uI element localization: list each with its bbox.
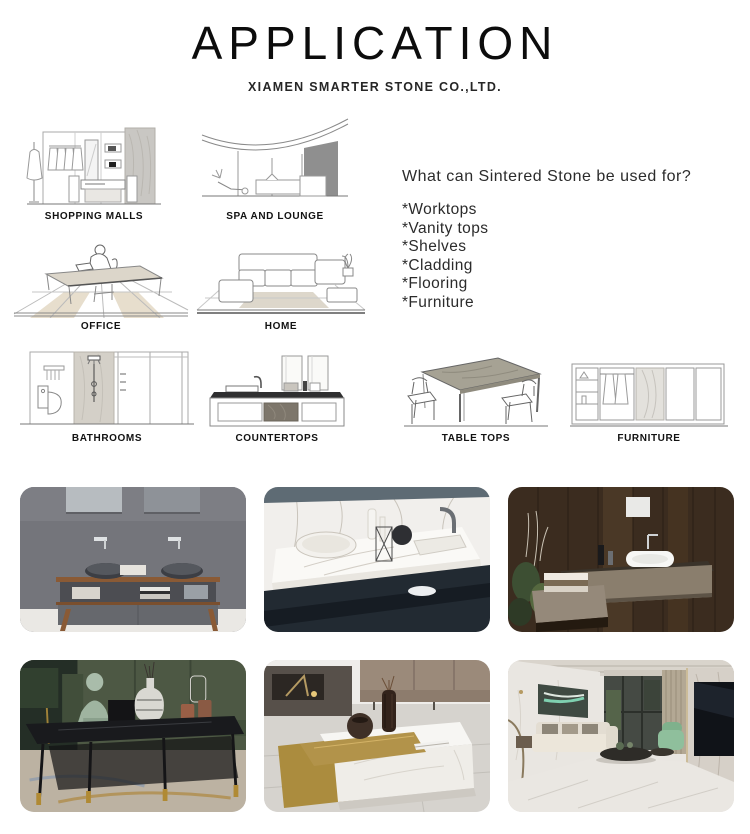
- photo-1-image: [20, 487, 246, 632]
- application-label: SHOPPING MALLS: [25, 211, 163, 222]
- application-home: HOME: [195, 240, 367, 332]
- application-countertops: COUNTERTOPS: [206, 352, 348, 444]
- photo-double-basin-grey-stone-vanity: [20, 487, 246, 632]
- photo-4-image: [20, 660, 246, 812]
- photo-white-marble-gold-coffee-table: [264, 660, 490, 812]
- photo-5-image: [264, 660, 490, 812]
- use-item: *Shelves: [402, 238, 740, 257]
- office-illustration: [12, 234, 190, 318]
- application-label: SPA AND LOUNGE: [200, 211, 350, 222]
- application-furniture: FURNITURE: [568, 360, 730, 444]
- application-label: COUNTERTOPS: [206, 433, 348, 444]
- spa-and-lounge-illustration: [200, 118, 350, 208]
- application-label: HOME: [195, 321, 367, 332]
- page-title: APPLICATION: [0, 20, 750, 66]
- application-label: TABLE TOPS: [402, 433, 550, 444]
- application-table-tops: TABLE TOPS: [402, 350, 550, 444]
- photo-2-image: [264, 487, 490, 632]
- use-item: *Cladding: [402, 257, 740, 276]
- application-label: FURNITURE: [568, 433, 730, 444]
- photo-6-image: [508, 660, 734, 812]
- photo-black-sintered-stone-coffee-table: [20, 660, 246, 812]
- intro-text: What can Sintered Stone be used for? *Wo…: [402, 168, 740, 312]
- application-office: OFFICE: [12, 234, 190, 332]
- application-spa-and-lounge: SPA AND LOUNGE: [200, 118, 350, 222]
- photo-white-marble-washbasin-countertop: [264, 487, 490, 632]
- question-heading: What can Sintered Stone be used for?: [402, 168, 740, 186]
- use-item: *Flooring: [402, 275, 740, 294]
- uses-list: *Worktops *Vanity tops *Shelves *Claddin…: [402, 201, 740, 312]
- use-item: *Vanity tops: [402, 220, 740, 239]
- application-label: BATHROOMS: [18, 433, 196, 444]
- countertops-illustration: [206, 352, 348, 430]
- shopping-malls-illustration: [25, 122, 163, 208]
- table-tops-illustration: [402, 350, 550, 430]
- photo-floating-stone-vanity-dark-wood-wall: [508, 487, 734, 632]
- photo-3-image: [508, 487, 734, 632]
- furniture-illustration: [568, 360, 730, 430]
- photo-marble-floor-living-room: [508, 660, 734, 812]
- application-shopping-malls: SHOPPING MALLS: [25, 122, 163, 222]
- application-page: APPLICATION XIAMEN SMARTER STONE CO.,LTD…: [0, 0, 750, 834]
- application-label: OFFICE: [12, 321, 190, 332]
- application-bathrooms: BATHROOMS: [18, 346, 196, 444]
- company-subtitle: XIAMEN SMARTER STONE CO.,LTD.: [0, 80, 750, 94]
- use-item: *Furniture: [402, 294, 740, 313]
- home-illustration: [195, 240, 367, 318]
- use-item: *Worktops: [402, 201, 740, 220]
- bathrooms-illustration: [18, 346, 196, 430]
